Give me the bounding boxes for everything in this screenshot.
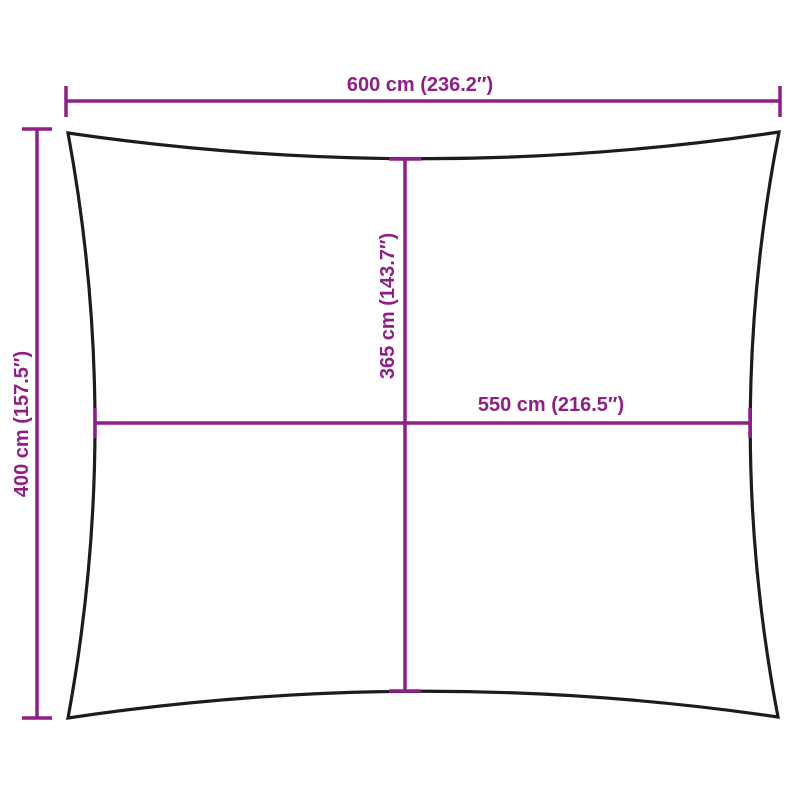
diagram-canvas: 600 cm (236.2″) 400 cm (157.5″) 365 cm (… (0, 0, 800, 800)
inner-width-dimension-line (95, 408, 750, 438)
dimension-diagram: 600 cm (236.2″) 400 cm (157.5″) 365 cm (… (0, 0, 800, 800)
left-height-label: 400 cm (157.5″) (11, 351, 33, 497)
top-width-label: 600 cm (236.2″) (347, 74, 493, 96)
inner-height-label: 365 cm (143.7″) (377, 233, 399, 379)
sail-outline (68, 132, 779, 718)
inner-width-label: 550 cm (216.5″) (478, 394, 624, 416)
